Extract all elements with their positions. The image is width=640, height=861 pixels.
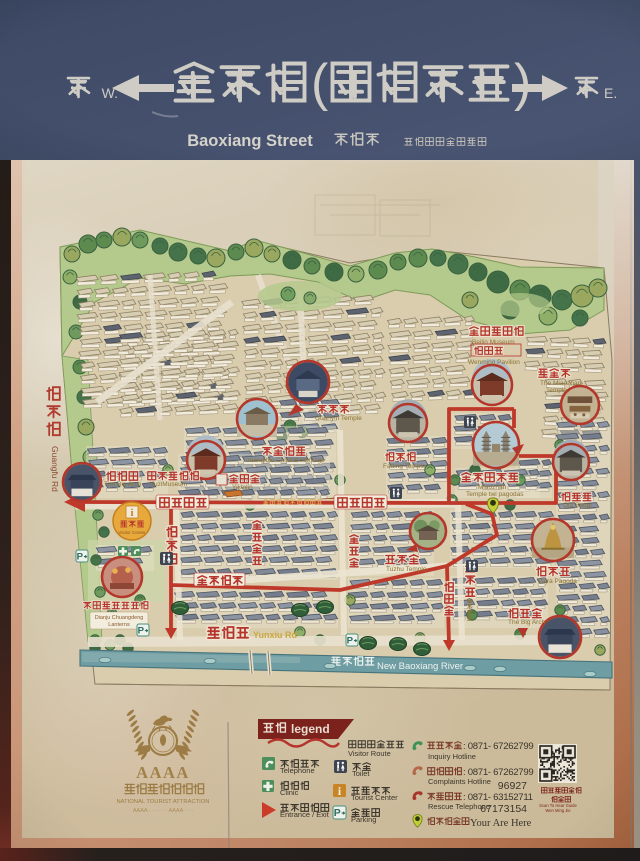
- svg-text:(: (: [311, 54, 329, 112]
- svg-text:The Big Arch: The Big Arch: [508, 619, 546, 626]
- svg-text:Tourist Center: Tourist Center: [351, 793, 398, 802]
- svg-text:67173154: 67173154: [480, 803, 527, 815]
- svg-text:E.: E.: [604, 85, 617, 101]
- svg-text:Baoxiang Street: Baoxiang Street: [187, 132, 313, 150]
- svg-text:P: P: [138, 625, 145, 636]
- svg-text:P: P: [334, 808, 341, 819]
- svg-text:Complaints Hotline: Complaints Hotline: [428, 777, 491, 786]
- svg-text:The Miaozhan: The Miaozhan: [540, 380, 582, 387]
- svg-text:AAAA · · · · · · AAAA · · ·: AAAA · · · · · · AAAA · · ·: [133, 808, 193, 814]
- svg-text:Parking: Parking: [351, 815, 376, 824]
- svg-text:Fading Temple: Fading Temple: [383, 463, 426, 470]
- svg-text:96927: 96927: [498, 780, 527, 792]
- svg-text:Visitor Center: Visitor Center: [118, 530, 146, 535]
- svg-text:Old Stage: Old Stage: [563, 502, 592, 509]
- svg-text:AAAA: AAAA: [136, 763, 190, 782]
- svg-text:YuziMuseum: YuziMuseum: [150, 481, 187, 488]
- svg-text:Wenming Pavilion: Wenming Pavilion: [468, 359, 520, 366]
- svg-text:Telephone: Telephone: [280, 766, 315, 775]
- svg-text:: 0871- 67262799: : 0871- 67262799: [463, 741, 533, 752]
- svg-text:Lanterns: Lanterns: [108, 622, 130, 628]
- svg-text:Dianju Chuangdeng: Dianju Chuangdeng: [95, 615, 144, 621]
- svg-text:Your Are Here: Your Are Here: [470, 818, 532, 829]
- svg-text:The Big Arch: The Big Arch: [104, 481, 142, 488]
- svg-text:NATIONAL TOURIST ATTRACTION: NATIONAL TOURIST ATTRACTION: [117, 799, 210, 805]
- svg-text:Temple twi pagodas: Temple twi pagodas: [466, 491, 524, 498]
- svg-text:i: i: [131, 508, 134, 519]
- svg-text:P: P: [347, 635, 354, 646]
- svg-text:Miaozhan: Miaozhan: [478, 484, 507, 491]
- svg-text:Yunxiu Rd: Yunxiu Rd: [253, 630, 297, 640]
- svg-text:New Baoxiang River: New Baoxiang River: [377, 661, 463, 672]
- svg-text:Temple: Temple: [546, 387, 567, 394]
- svg-text:Beilin Museum: Beilin Museum: [472, 339, 515, 346]
- svg-text:Wen Ming Jie: Wen Ming Jie: [545, 808, 571, 813]
- svg-text:Guangfu Rd: Guangfu Rd: [50, 446, 60, 492]
- svg-text:legend: legend: [291, 722, 330, 736]
- svg-text:Visitor Route: Visitor Route: [348, 749, 391, 758]
- svg-text:Clinic: Clinic: [280, 788, 299, 797]
- svg-text:Entrance / Exit: Entrance / Exit: [280, 810, 330, 819]
- svg-text:Guanyin Temple: Guanyin Temple: [315, 415, 362, 422]
- svg-text:Tuzhu Temple: Tuzhu Temple: [386, 566, 427, 573]
- svg-text:Inquiry Hotline: Inquiry Hotline: [428, 752, 476, 761]
- svg-text:P: P: [77, 551, 84, 562]
- svg-text:Vajra Pagoda: Vajra Pagoda: [538, 578, 577, 585]
- svg-text:Toilet: Toilet: [352, 769, 370, 778]
- svg-text:): ): [514, 54, 531, 112]
- svg-text:Yikeyin: Yikeyin: [232, 484, 253, 491]
- svg-text:Intangible Cultural Heritage: Intangible Cultural Heritage: [246, 457, 325, 464]
